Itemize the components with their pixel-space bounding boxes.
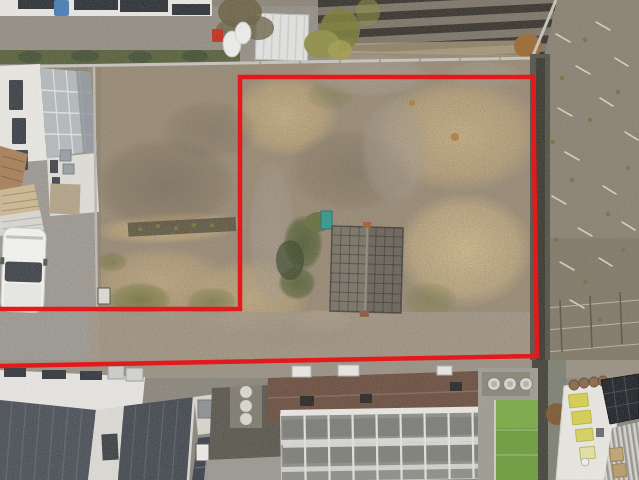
- screenshot-root: Aerial drone photo of a vacant overgrown…: [0, 0, 639, 480]
- aerial-photo: Aerial drone photo of a vacant overgrown…: [0, 0, 639, 480]
- photo-grain: [0, 0, 639, 480]
